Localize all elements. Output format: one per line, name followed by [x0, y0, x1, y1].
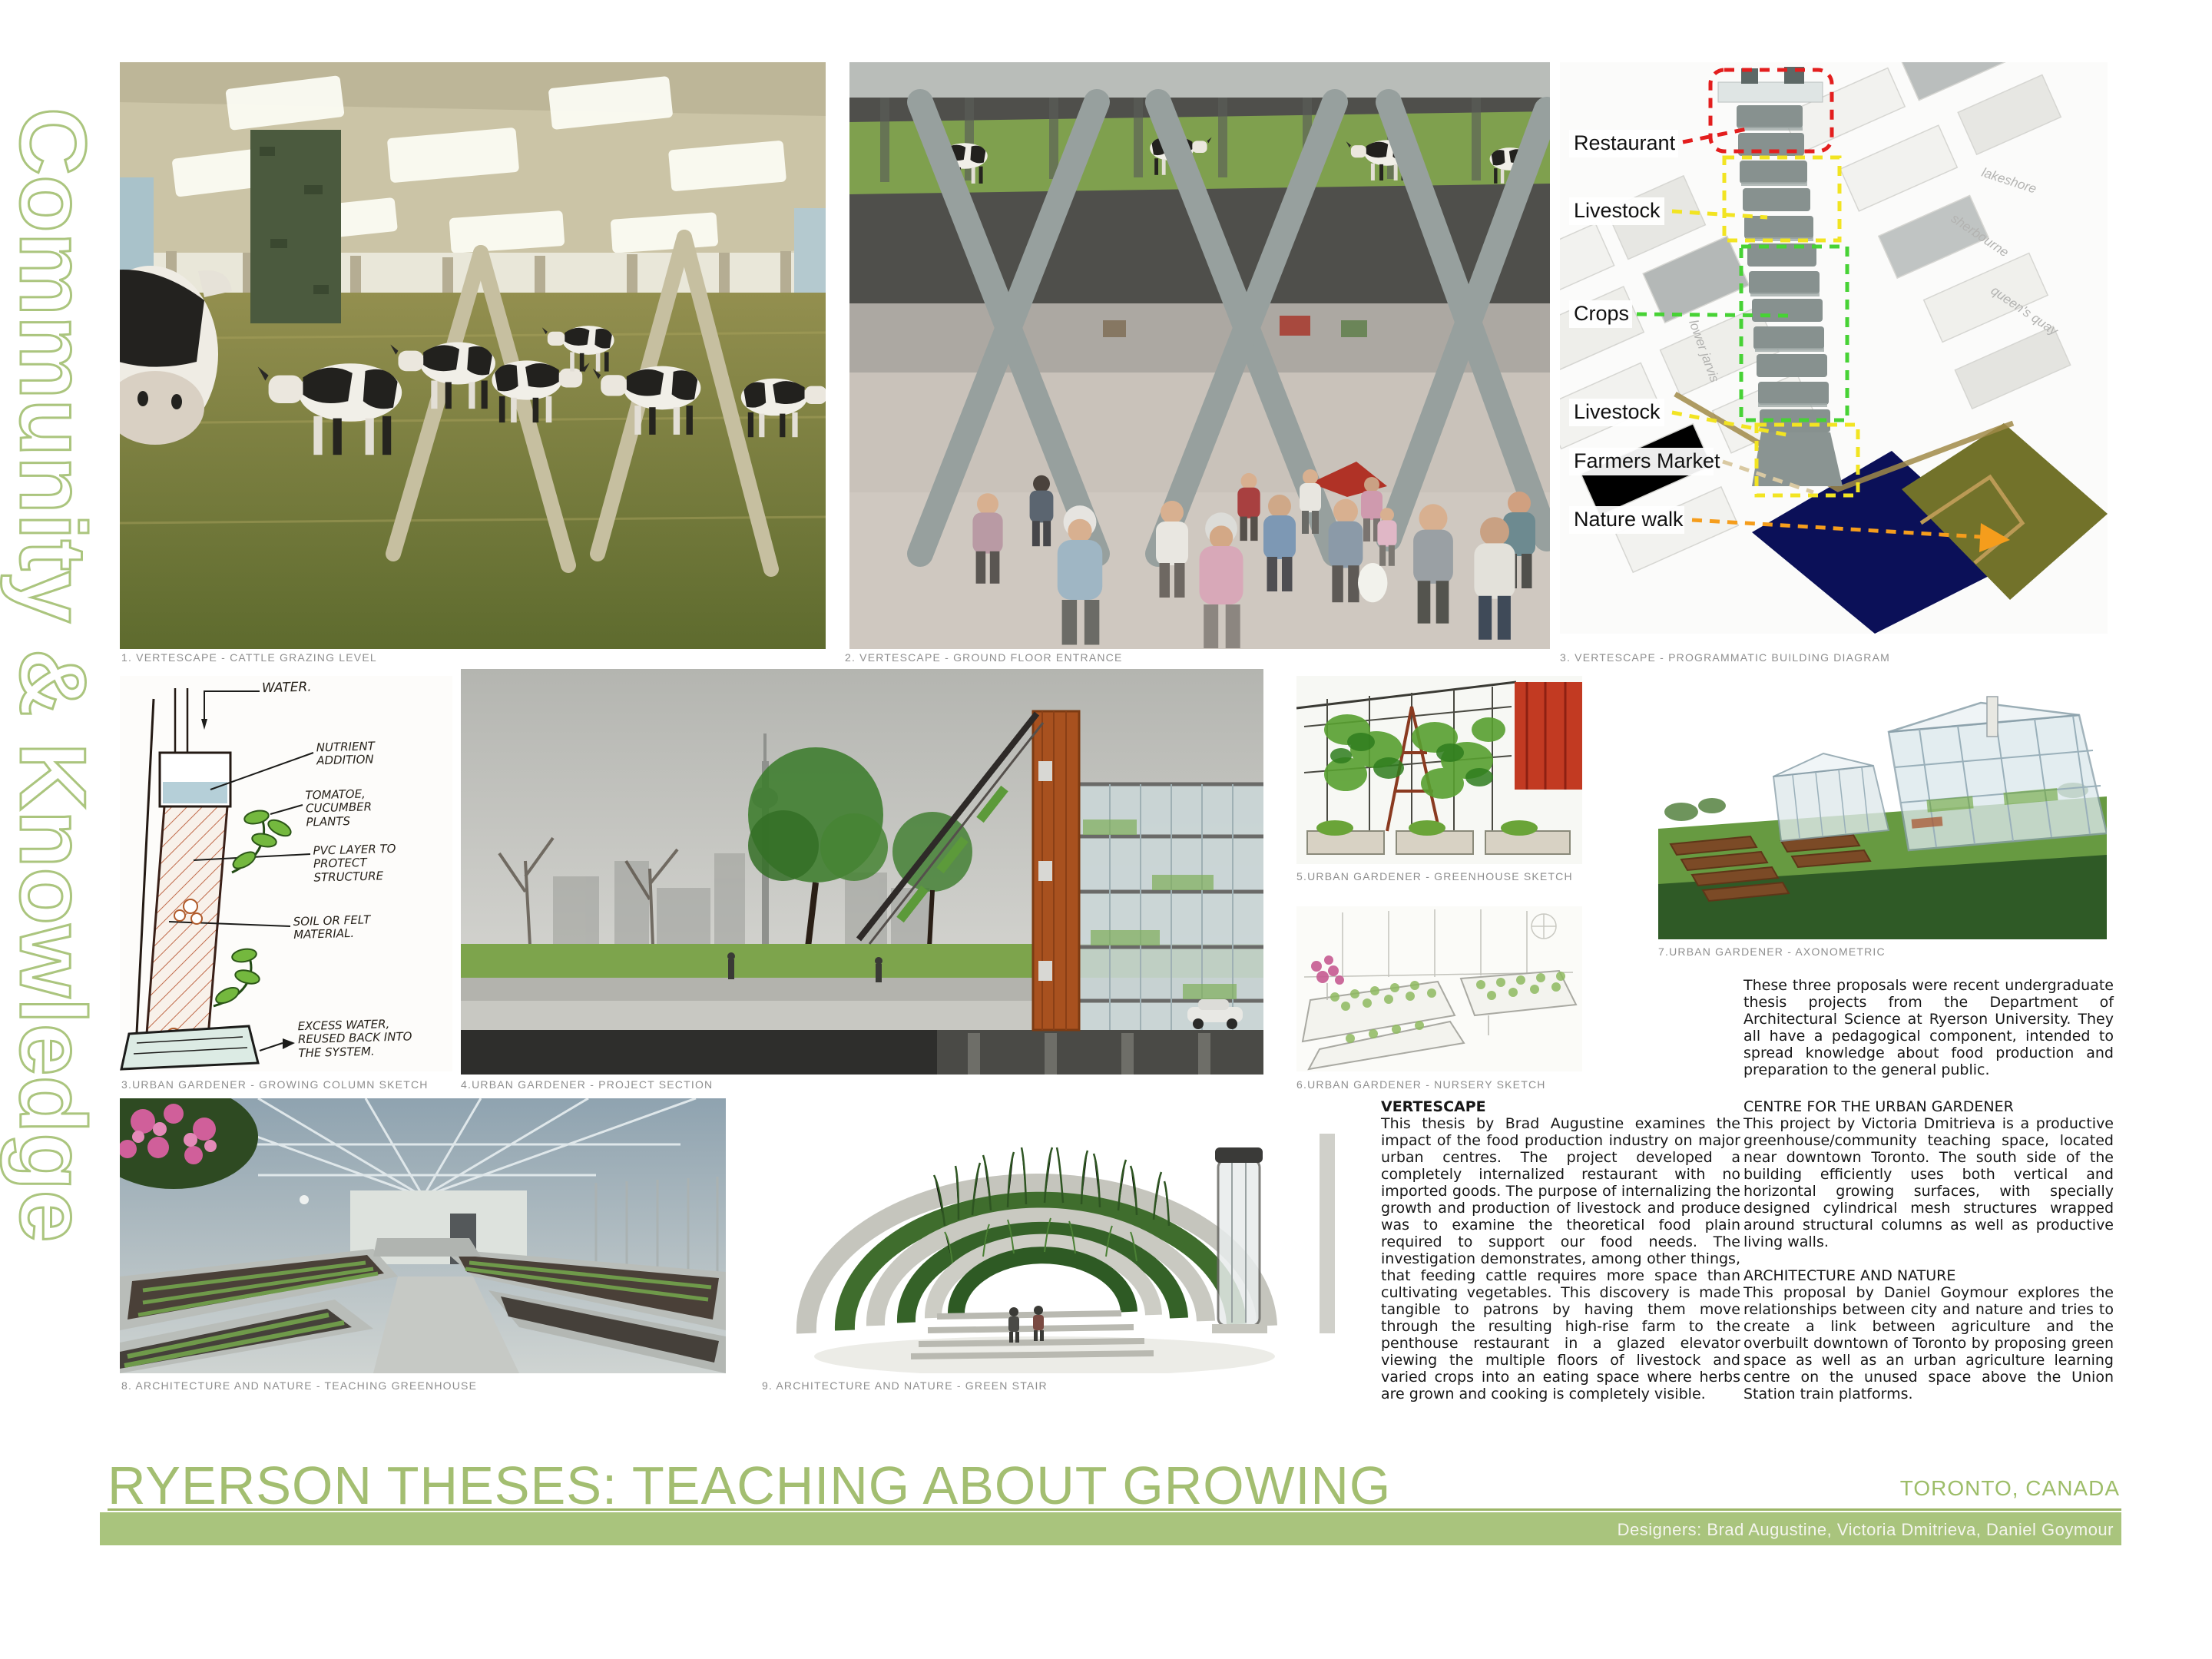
figure-cattle-grazing-render — [120, 62, 826, 649]
caption-7: 6.URBAN GARDENER - NURSERY SKETCH — [1296, 1078, 1546, 1091]
glass-elevator — [1212, 1147, 1267, 1333]
column-right-sections: CENTRE FOR THE URBAN GARDENER This proje… — [1743, 1098, 2114, 1419]
figure-nursery-sketch — [1296, 906, 1582, 1071]
project-section-image — [461, 669, 1263, 1075]
caption-4: 3.URBAN GARDENER - GROWING COLUMN SKETCH — [121, 1078, 429, 1091]
annotation-pvc: PVC LAYER TO PROTECT STRUCTURE — [313, 842, 412, 884]
page-title: RYERSON THESES: TEACHING ABOUT GROWING — [108, 1455, 1391, 1516]
heading-urban-gardener: CENTRE FOR THE URBAN GARDENER — [1743, 1098, 2114, 1115]
heading-architecture-nature: ARCHITECTURE AND NATURE — [1743, 1267, 2114, 1284]
greenhouse-sketch-image — [1296, 676, 1582, 864]
caption-10: 9. ARCHITECTURE AND NATURE - GREEN STAIR — [762, 1379, 1048, 1392]
figure-programmatic-diagram: lakeshore sherbourne queen's quay lower … — [1560, 62, 2108, 634]
annotation-water: WATER. — [262, 680, 336, 697]
caption-8: 7.URBAN GARDENER - AXONOMETRIC — [1658, 945, 1886, 958]
caption-9: 8. ARCHITECTURE AND NATURE - TEACHING GR… — [121, 1379, 477, 1392]
figure-axonometric — [1658, 683, 2107, 939]
body-urban-gardener: This project by Victoria Dmitrieva is a … — [1743, 1115, 2114, 1250]
programmatic-diagram-image: lakeshore sherbourne queen's quay lower … — [1560, 62, 2108, 634]
figure-greenhouse-sketch — [1296, 676, 1582, 864]
intro-paragraph: These three proposals were recent underg… — [1743, 977, 2114, 1078]
annotation-nutrient: NUTRIENT ADDITION — [316, 740, 397, 768]
nursery-sketch-image — [1296, 906, 1582, 1071]
figure-teaching-greenhouse — [120, 1098, 726, 1373]
annotation-soil: SOIL OR FELT MATERIAL. — [293, 912, 409, 942]
annotation-plants: TOMATOE, CUCUMBER PLANTS — [305, 786, 395, 829]
label-crops: Crops — [1574, 302, 1629, 325]
figure-ground-floor-entrance — [849, 62, 1550, 649]
leader-crops — [1637, 314, 1790, 316]
caption-5: 4.URBAN GARDENER - PROJECT SECTION — [461, 1078, 713, 1091]
label-livestock-lower: Livestock — [1574, 400, 1661, 423]
heading-vertescape: VERTESCAPE — [1381, 1098, 1740, 1115]
axonometric-image — [1658, 683, 2107, 939]
title-rule — [108, 1508, 2121, 1511]
cattle-grazing-image — [120, 62, 826, 649]
label-restaurant: Restaurant — [1574, 131, 1676, 154]
body-architecture-nature: This proposal by Daniel Goymour explores… — [1743, 1284, 2114, 1402]
figure-green-stair — [760, 1103, 1352, 1373]
caption-2: 2. VERTESCAPE - GROUND FLOOR ENTRANCE — [845, 651, 1123, 664]
location-label: TORONTO, CANADA — [1900, 1476, 2120, 1501]
column-vertescape: VERTESCAPE This thesis by Brad Augustine… — [1381, 1098, 1740, 1419]
annotation-excess-water: EXCESS WATER, REUSED BACK INTO THE SYSTE… — [297, 1017, 429, 1060]
ground-floor-entrance-image — [849, 62, 1550, 649]
teaching-greenhouse-image — [120, 1098, 726, 1373]
designers-credit: Designers: Brad Augustine, Victoria Dmit… — [1618, 1520, 2114, 1540]
caption-1: 1. VERTESCAPE - CATTLE GRAZING LEVEL — [121, 651, 377, 664]
label-livestock-upper: Livestock — [1574, 199, 1661, 222]
figure-growing-column-sketch: WATER. NUTRIENT ADDITION TOMATOE, CUCUMB… — [120, 676, 452, 1071]
side-title: Community & Knowledge — [6, 108, 100, 1243]
label-farmers-market: Farmers Market — [1574, 449, 1720, 472]
green-stair-image — [760, 1103, 1352, 1373]
poster-board: Community & Knowledge — [0, 0, 2212, 1659]
caption-3: 3. VERTESCAPE - PROGRAMMATIC BUILDING DI… — [1560, 651, 1890, 664]
caption-6: 5.URBAN GARDENER - GREENHOUSE SKETCH — [1296, 870, 1573, 882]
label-nature-walk: Nature walk — [1574, 508, 1684, 531]
body-vertescape: This thesis by Brad Augustine examines t… — [1381, 1115, 1740, 1402]
figure-project-section — [461, 669, 1263, 1075]
